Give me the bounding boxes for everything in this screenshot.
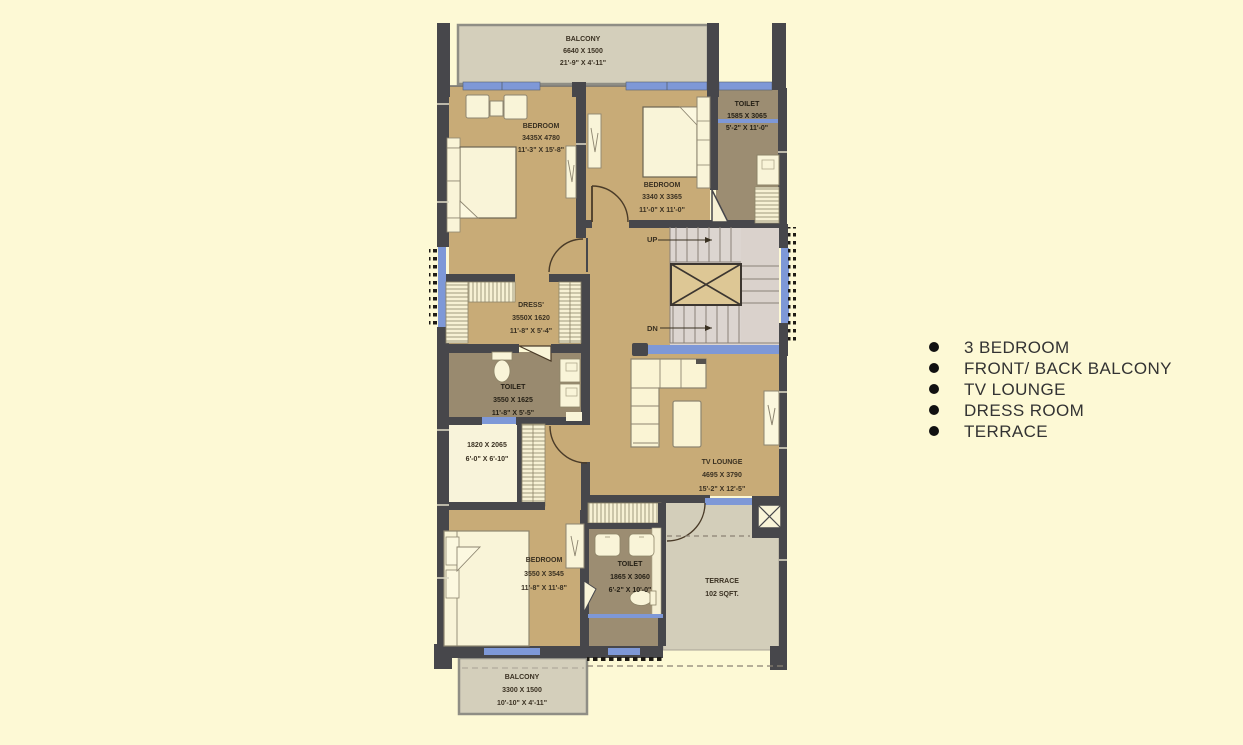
svg-text:6'-0" X 6'-10": 6'-0" X 6'-10" bbox=[466, 456, 509, 463]
svg-text:DRESS ROOM: DRESS ROOM bbox=[964, 401, 1084, 420]
svg-text:DN: DN bbox=[647, 324, 658, 333]
svg-text:1585 X 3065: 1585 X 3065 bbox=[727, 113, 767, 120]
svg-text:6'-2" X 10'-0": 6'-2" X 10'-0" bbox=[609, 587, 652, 594]
svg-text:11'-8" X 5'-4": 11'-8" X 5'-4" bbox=[510, 328, 552, 335]
svg-text:1865 X 3060: 1865 X 3060 bbox=[610, 574, 650, 581]
svg-text:DRESS': DRESS' bbox=[518, 302, 544, 309]
svg-text:1820 X 2065: 1820 X 2065 bbox=[467, 442, 507, 449]
svg-text:TV LOUNGE: TV LOUNGE bbox=[702, 459, 743, 466]
svg-text:15'-2" X 12'-5": 15'-2" X 12'-5" bbox=[699, 486, 746, 493]
svg-text:BALCONY: BALCONY bbox=[566, 36, 601, 43]
svg-text:4695 X 3790: 4695 X 3790 bbox=[702, 472, 742, 479]
svg-text:TOILET: TOILET bbox=[735, 101, 760, 108]
svg-text:3435X 4780: 3435X 4780 bbox=[522, 135, 560, 142]
svg-text:BEDROOM: BEDROOM bbox=[644, 182, 681, 189]
svg-text:21'-9" X 4'-11": 21'-9" X 4'-11" bbox=[560, 60, 606, 67]
svg-text:11'-8" X 5'-5": 11'-8" X 5'-5" bbox=[492, 410, 534, 417]
svg-text:BALCONY: BALCONY bbox=[505, 674, 540, 681]
svg-text:TERRACE: TERRACE bbox=[964, 422, 1048, 441]
svg-text:3550X 1620: 3550X 1620 bbox=[512, 315, 550, 322]
svg-text:3340 X 3365: 3340 X 3365 bbox=[642, 194, 682, 201]
svg-text:TOILET: TOILET bbox=[618, 561, 643, 568]
svg-text:FRONT/ BACK BALCONY: FRONT/ BACK BALCONY bbox=[964, 359, 1172, 378]
svg-text:TERRACE: TERRACE bbox=[705, 578, 739, 585]
svg-text:11'-8" X 11'-8": 11'-8" X 11'-8" bbox=[521, 585, 567, 592]
svg-text:TOILET: TOILET bbox=[501, 384, 526, 391]
svg-text:BEDROOM: BEDROOM bbox=[526, 557, 563, 564]
svg-text:5'-2" X 11'-0": 5'-2" X 11'-0" bbox=[726, 125, 768, 132]
svg-text:TV LOUNGE: TV LOUNGE bbox=[964, 380, 1066, 399]
svg-text:10'-10" X 4'-11": 10'-10" X 4'-11" bbox=[497, 700, 547, 707]
svg-text:3 BEDROOM: 3 BEDROOM bbox=[964, 338, 1070, 357]
svg-text:6640 X 1500: 6640 X 1500 bbox=[563, 48, 603, 55]
svg-text:3550 X 1625: 3550 X 1625 bbox=[493, 397, 533, 404]
svg-text:11'-3" X 15'-8": 11'-3" X 15'-8" bbox=[518, 147, 564, 154]
svg-text:BEDROOM: BEDROOM bbox=[523, 123, 560, 130]
svg-text:UP: UP bbox=[647, 235, 657, 244]
svg-text:3300 X 1500: 3300 X 1500 bbox=[502, 687, 542, 694]
svg-text:102 SQFT.: 102 SQFT. bbox=[705, 591, 739, 598]
svg-text:11'-0" X 11'-0": 11'-0" X 11'-0" bbox=[639, 207, 685, 214]
svg-text:3550 X 3545: 3550 X 3545 bbox=[524, 571, 564, 578]
